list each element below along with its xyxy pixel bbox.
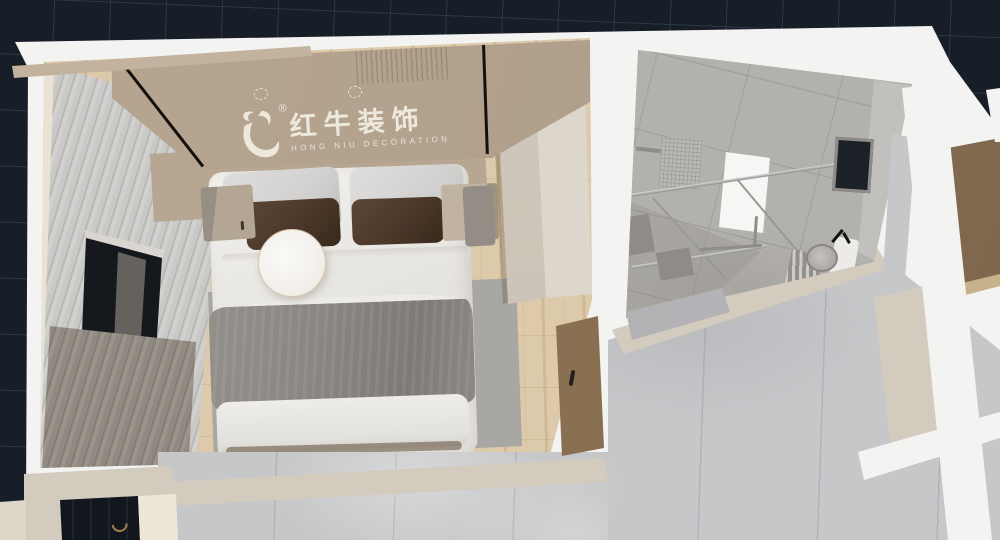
brown-pillow-right — [351, 196, 445, 245]
nightstand-left-handle — [241, 221, 245, 230]
toilet-bowl — [806, 244, 838, 272]
hongniu-bull-logo-icon: ® — [235, 108, 284, 163]
ceiling-groove-right — [482, 44, 488, 154]
registered-mark: ® — [278, 103, 287, 114]
watermark-text: 红牛装饰 HONG NIU DECORATION — [289, 103, 451, 153]
gray-ottoman — [462, 185, 495, 246]
round-pendant-lamp — [258, 229, 326, 297]
3d-room-viewport[interactable]: ® 红牛装饰 HONG NIU DECORATION — [0, 0, 1000, 540]
nightstand-left — [200, 184, 256, 241]
floor-shadow-box — [656, 247, 694, 280]
bathroom-mirror — [832, 137, 874, 194]
shower-head — [658, 137, 703, 190]
watermark-logo: ® 红牛装饰 HONG NIU DECORATION — [234, 85, 478, 174]
